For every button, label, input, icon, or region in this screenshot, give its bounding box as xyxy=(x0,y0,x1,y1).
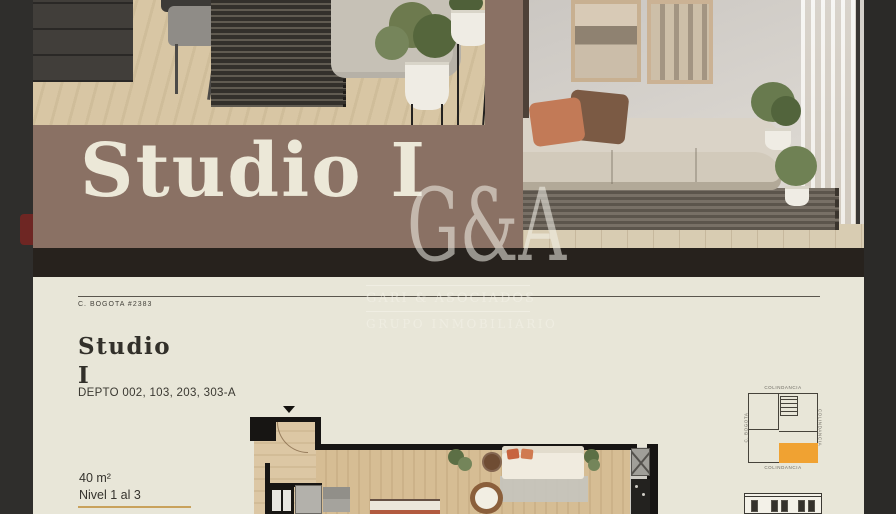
plan-kitchen-counter xyxy=(631,479,650,514)
unit-title-line2: I xyxy=(78,362,90,389)
photo-window-frame xyxy=(856,0,860,224)
plan-wall xyxy=(274,417,320,422)
project-reference: C. BOGOTA #2383 xyxy=(78,301,152,308)
viewer-right-gutter xyxy=(864,0,896,514)
accent-underline xyxy=(78,506,191,508)
unit-title-line1: Studio xyxy=(78,333,171,360)
photo-wall-art xyxy=(571,0,641,82)
elevation-window xyxy=(798,500,805,512)
plan-dresser xyxy=(323,487,350,512)
unit-title: Studio I xyxy=(78,332,171,390)
watermark-divider xyxy=(366,285,530,286)
watermark-monogram: G&A xyxy=(366,176,530,280)
photo-plant-stand xyxy=(411,104,413,125)
photo-sofa-seam xyxy=(611,150,613,184)
keyplan-label-left: C. BOGOTA xyxy=(744,398,749,458)
plan-stove-knob xyxy=(642,493,645,496)
viewer-left-gutter xyxy=(0,0,33,514)
photo-plant xyxy=(375,26,409,60)
elevation-window xyxy=(781,500,788,512)
photo-pillow xyxy=(528,97,586,148)
photo-plant-pot xyxy=(785,186,809,206)
photo-plant-pot xyxy=(405,62,449,110)
unit-numbers: DEPTO 002, 103, 203, 303-A xyxy=(78,387,236,399)
photo-plant-stand xyxy=(441,104,443,125)
unit-area: 40 m² xyxy=(79,471,111,485)
plan-kitchen-sink xyxy=(631,448,650,476)
photo-sofa-seam xyxy=(695,148,697,182)
keyplan-line xyxy=(779,431,818,432)
elevation-diagram xyxy=(744,493,822,514)
plan-bed-blanket xyxy=(370,510,440,514)
elevation-window xyxy=(808,500,815,512)
watermark-company: GARI & ASOCIADOS xyxy=(366,291,530,306)
plan-sofa xyxy=(502,446,584,479)
keyplan-highlighted-unit xyxy=(779,443,818,463)
plan-bath-fixtures xyxy=(269,487,294,514)
keyplan-line xyxy=(778,393,779,429)
plan-coffee-table xyxy=(482,452,502,472)
photo-plant xyxy=(775,146,817,186)
keyplan-label-top: COLINDANCIA xyxy=(742,385,824,390)
plan-rug xyxy=(500,476,588,502)
photo-plant-pot xyxy=(451,10,485,46)
plan-appliance xyxy=(283,490,291,511)
photo-striped-rug xyxy=(211,0,346,107)
elevation-window xyxy=(751,500,758,512)
photo-plant xyxy=(771,96,801,126)
plan-shower xyxy=(295,485,322,514)
entrance-arrow-icon xyxy=(283,406,295,413)
plan-armchair xyxy=(470,482,503,514)
plan-wall xyxy=(250,417,276,441)
unit-level: Nivel 1 al 3 xyxy=(79,488,141,502)
elevation-band xyxy=(745,496,822,497)
keyplan-label-bottom: COLINDANCIA xyxy=(742,465,824,470)
floorplan-drawing xyxy=(250,405,658,514)
interior-photo-living xyxy=(523,0,864,248)
plan-plant xyxy=(588,459,600,471)
keyplan-label-right: COLINDANCIA xyxy=(818,398,823,458)
plan-bed xyxy=(370,499,440,514)
plan-stove-knob xyxy=(635,485,638,488)
photo-kitchen-cabinets xyxy=(33,0,133,82)
plan-plant xyxy=(458,457,472,471)
watermark: G&A GARI & ASOCIADOS GRUPO INMOBILIARIO xyxy=(366,176,530,331)
keyplan-stairs xyxy=(780,396,798,416)
interior-photo-kitchen xyxy=(33,0,485,125)
photo-plant-stand xyxy=(457,44,459,125)
watermark-divider xyxy=(366,311,530,312)
plan-pillow xyxy=(521,448,534,459)
photo-chair-leg xyxy=(175,44,178,94)
elevation-window xyxy=(771,500,778,512)
viewer-stage: Studio I C. BOGOTA #2383 Studio I DEPTO … xyxy=(0,0,896,514)
plan-pillow xyxy=(506,448,519,460)
red-tab-icon[interactable] xyxy=(20,214,33,245)
keyplan-line xyxy=(748,429,779,430)
keyplan-diagram: COLINDANCIA COLINDANCIA C. BOGOTA COLIND… xyxy=(742,383,824,470)
watermark-tagline: GRUPO INMOBILIARIO xyxy=(366,317,530,331)
photo-plant-stand xyxy=(482,44,485,125)
photo-wall-art xyxy=(647,0,713,84)
plan-appliance xyxy=(272,490,281,511)
